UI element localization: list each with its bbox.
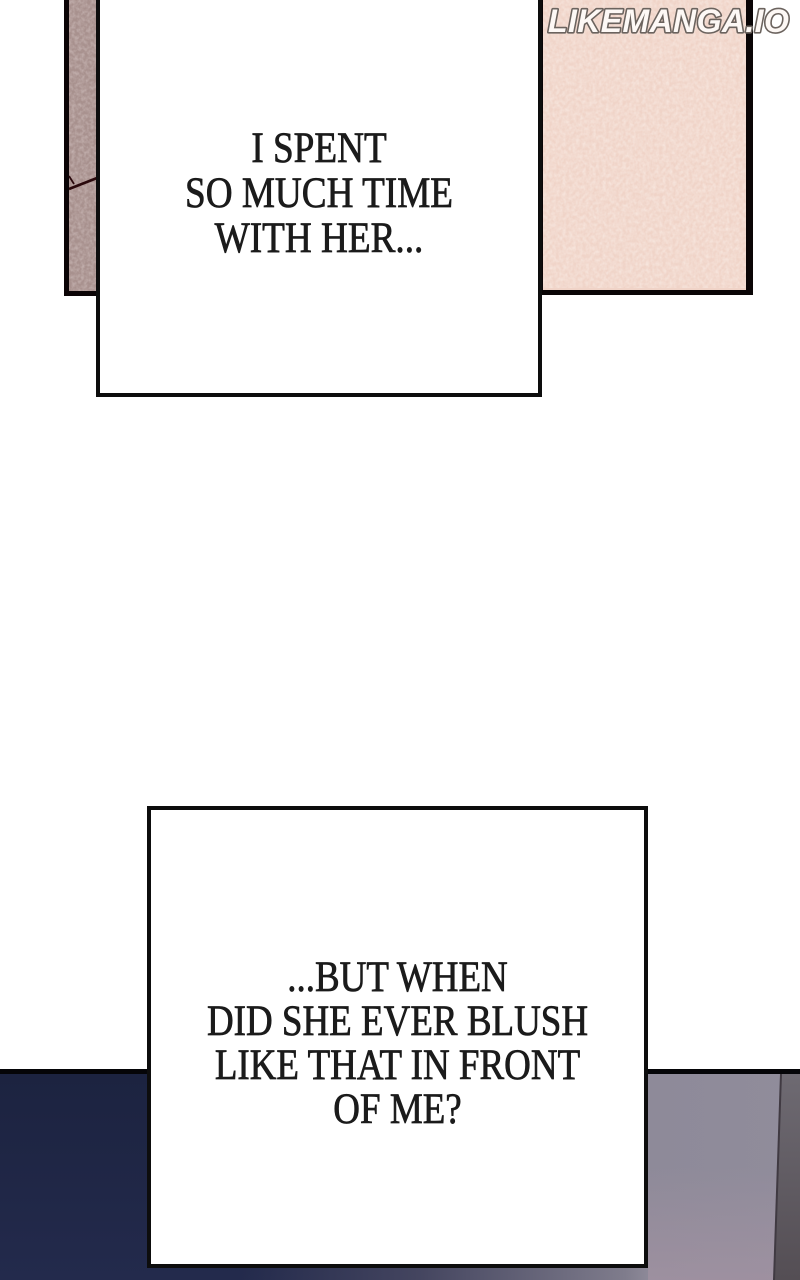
svg-text:LIKEMANGA.IO: LIKEMANGA.IO — [548, 3, 789, 39]
